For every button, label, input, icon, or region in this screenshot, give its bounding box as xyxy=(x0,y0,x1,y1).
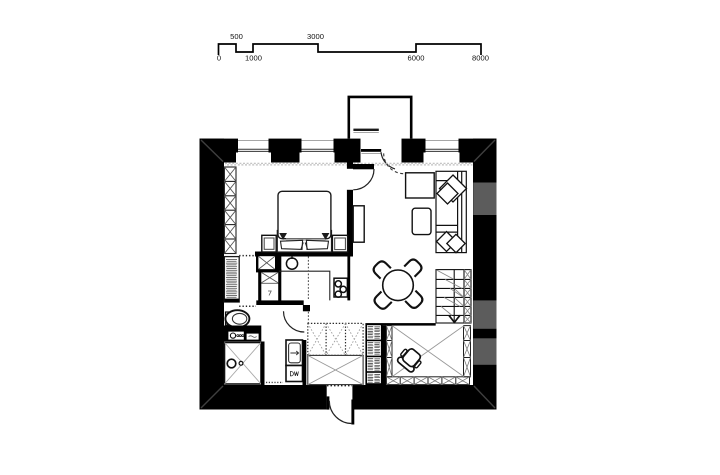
svg-text:3000: 3000 xyxy=(307,32,324,41)
svg-text:500: 500 xyxy=(230,32,243,41)
svg-text:6000: 6000 xyxy=(408,54,425,63)
svg-text:1000: 1000 xyxy=(245,54,262,63)
svg-text:0: 0 xyxy=(217,54,221,63)
svg-text:8000: 8000 xyxy=(472,54,489,63)
